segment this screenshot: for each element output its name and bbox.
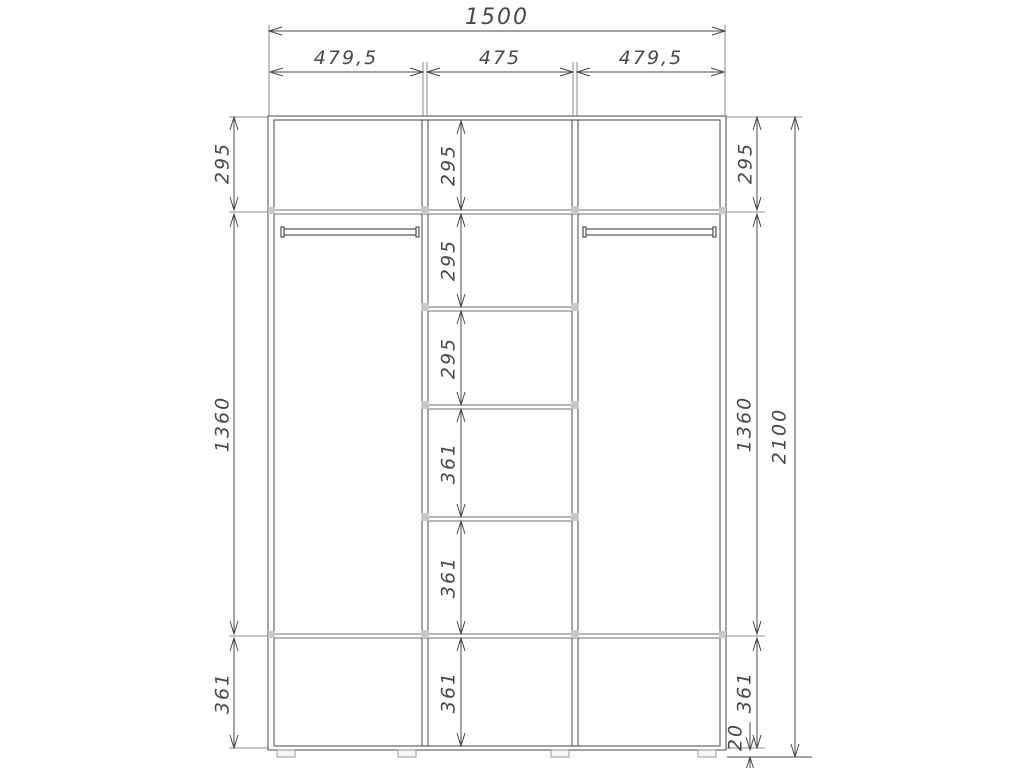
dim-label-left-bottom: 361 [212, 672, 234, 714]
dim-label-right-top: 295 [735, 142, 757, 184]
dim-label-section-width-left: 479,5 [314, 47, 378, 69]
dim-label-overall-width: 1500 [465, 5, 529, 30]
rod-bracket-icon [281, 227, 284, 237]
dim-label-section-width-right: 479,5 [619, 47, 683, 69]
dim-label-overall-height: 2100 [769, 408, 791, 464]
dim-label-center-6: 361 [438, 671, 460, 713]
wardrobe-dimension-drawing: 1500 479,5 475 479,5 295 1360 361 [0, 0, 1024, 768]
hanging-rod-right [583, 227, 716, 237]
cabinet-foot [398, 750, 416, 757]
rod-bracket-icon [713, 227, 716, 237]
cabinet-foot [698, 750, 716, 757]
dim-label-plinth: 20 [725, 723, 747, 751]
dim-label-left-top: 295 [212, 142, 234, 184]
hanging-rod-left [281, 227, 419, 237]
cabinet-foot [551, 750, 569, 757]
cabinet-foot [277, 750, 295, 757]
rod-bracket-icon [416, 227, 419, 237]
dim-label-center-2: 295 [438, 239, 460, 281]
dim-label-center-3: 295 [438, 337, 460, 379]
dim-label-center-1: 295 [438, 144, 460, 186]
rod-bracket-icon [583, 227, 586, 237]
dim-label-center-4: 361 [438, 442, 460, 484]
drawing-background [0, 0, 1024, 768]
dim-label-right-middle: 1360 [734, 396, 756, 452]
dim-label-section-width-center: 475 [479, 47, 521, 69]
dim-label-right-bottom: 361 [734, 671, 756, 713]
dim-label-center-5: 361 [438, 556, 460, 598]
dim-label-left-middle: 1360 [212, 396, 234, 452]
